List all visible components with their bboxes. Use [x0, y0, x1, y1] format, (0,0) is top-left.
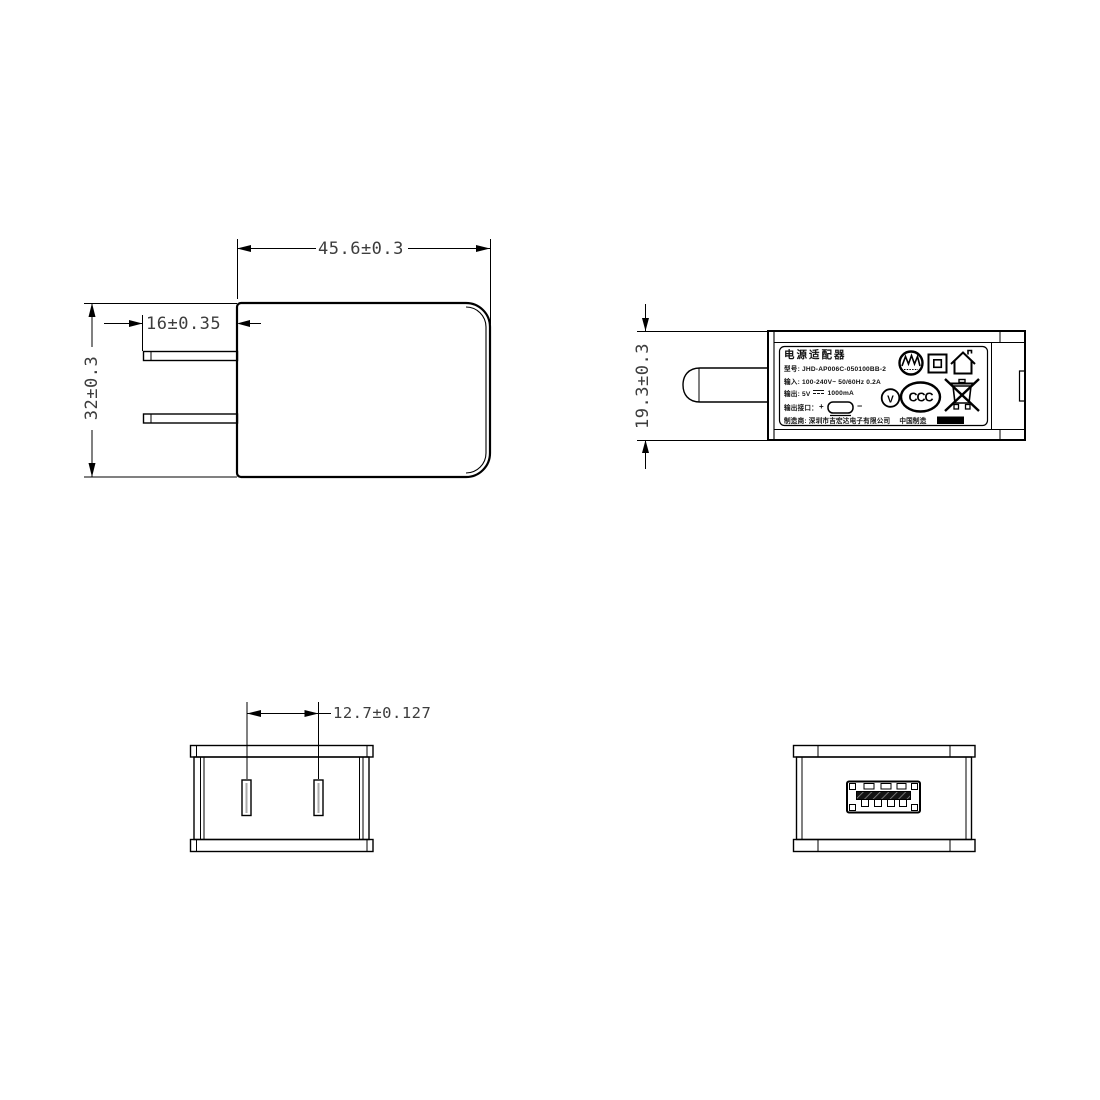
bottom-body-face — [194, 757, 369, 840]
usb-tongue — [857, 792, 911, 800]
dim-thickness-text: 19.3±0.3 — [634, 341, 652, 431]
top-view — [794, 746, 976, 852]
top-top-flange — [794, 746, 976, 758]
dim-width-text: 45.6±0.3 — [318, 239, 404, 259]
prong-slot-right — [314, 780, 323, 816]
label-output-prefix: 输出: 5V — [784, 388, 810, 398]
dc-symbol — [813, 390, 824, 397]
charger-body-outline — [237, 303, 490, 477]
weee-crossed-bin-icon — [945, 379, 979, 411]
cert-mark-circle-icon — [900, 352, 923, 375]
usb-port — [847, 782, 920, 813]
plug-prong-side — [683, 368, 768, 402]
label-port: 输出接口： — [784, 402, 818, 412]
label-output-suffix: 1000mA — [827, 390, 854, 397]
bottom-top-flange — [191, 746, 374, 758]
label-made-in: 中国制造 — [899, 415, 926, 425]
class2-double-insulation-icon — [929, 355, 947, 373]
label-manufacturer: 制造商: 深圳市吉宏达电子有限公司 — [784, 415, 890, 425]
label-title: 电源适配器 — [784, 347, 847, 362]
plug-prong-top — [144, 352, 238, 361]
dim-height-text: 32±0.3 — [83, 343, 101, 433]
label-manufacturer-row: 制造商: 深圳市吉宏达电子有限公司中国制造 — [784, 415, 927, 425]
label-plus-sign: + — [819, 402, 824, 411]
black-bar-mark — [937, 417, 964, 425]
label-model: 型号: JHD-AP006C-050100BB-2 — [784, 363, 886, 373]
indoor-use-house-icon — [951, 351, 975, 374]
drawing-linework: V CCC — [0, 0, 1100, 1100]
front-view — [84, 239, 491, 477]
efficiency-level-v-icon: V — [882, 389, 900, 407]
label-minus-sign: − — [857, 401, 862, 411]
side-view: V CCC — [637, 304, 1025, 469]
ccc-mark-icon: CCC — [901, 383, 940, 412]
dim-prong-pitch-text: 12.7±0.127 — [333, 704, 431, 722]
face-seam-line — [466, 307, 486, 473]
prong-slot-left — [242, 780, 251, 816]
label-input: 输入: 100-240V~ 50/60Hz 0.2A — [784, 376, 881, 386]
technical-drawing-page: V CCC — [0, 0, 1100, 1100]
dimension-prong-pitch-12-7 — [247, 702, 331, 779]
usb-connector-pictogram — [828, 402, 853, 416]
efficiency-letter: V — [887, 395, 894, 406]
plug-prong-bottom — [144, 414, 238, 423]
bottom-bottom-flange — [191, 840, 374, 852]
top-bottom-flange — [794, 840, 976, 852]
ccc-text: CCC — [908, 391, 933, 405]
label-output: 输出: 5V1000mA — [784, 388, 854, 398]
bottom-view — [191, 702, 374, 852]
dimension-thickness-19-3 — [637, 304, 768, 469]
dim-prong-length-text: 16±0.35 — [146, 314, 221, 334]
